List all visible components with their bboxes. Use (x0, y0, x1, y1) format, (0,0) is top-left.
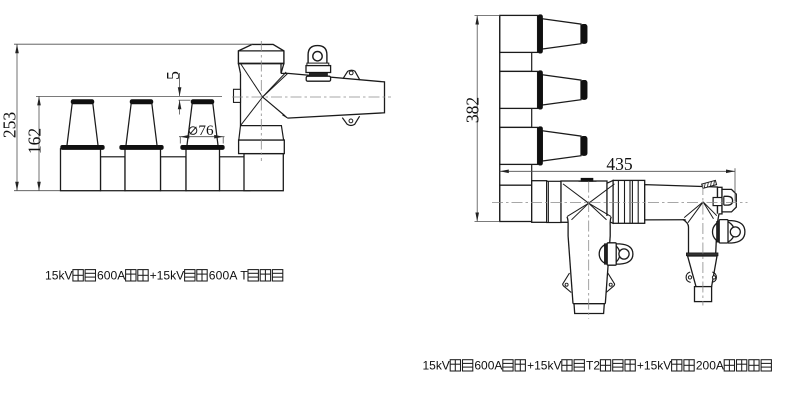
svg-text:382: 382 (462, 97, 482, 123)
svg-text:600A: 600A (474, 359, 502, 373)
svg-text:600A: 600A (97, 269, 126, 283)
svg-text:435: 435 (606, 154, 633, 174)
svg-text:600A T: 600A T (209, 269, 249, 283)
svg-text:200A: 200A (696, 359, 724, 373)
svg-text:162: 162 (25, 128, 45, 154)
svg-text:76: 76 (198, 122, 214, 139)
svg-text:5: 5 (163, 71, 183, 80)
svg-text:+15kV: +15kV (150, 269, 186, 283)
svg-text:T2: T2 (586, 359, 600, 373)
svg-text:253: 253 (0, 112, 19, 139)
svg-text:15kV: 15kV (45, 269, 74, 283)
svg-text:+15kV: +15kV (637, 359, 671, 373)
svg-text:15kV: 15kV (423, 359, 450, 373)
svg-text:+15kV: +15kV (527, 359, 561, 373)
